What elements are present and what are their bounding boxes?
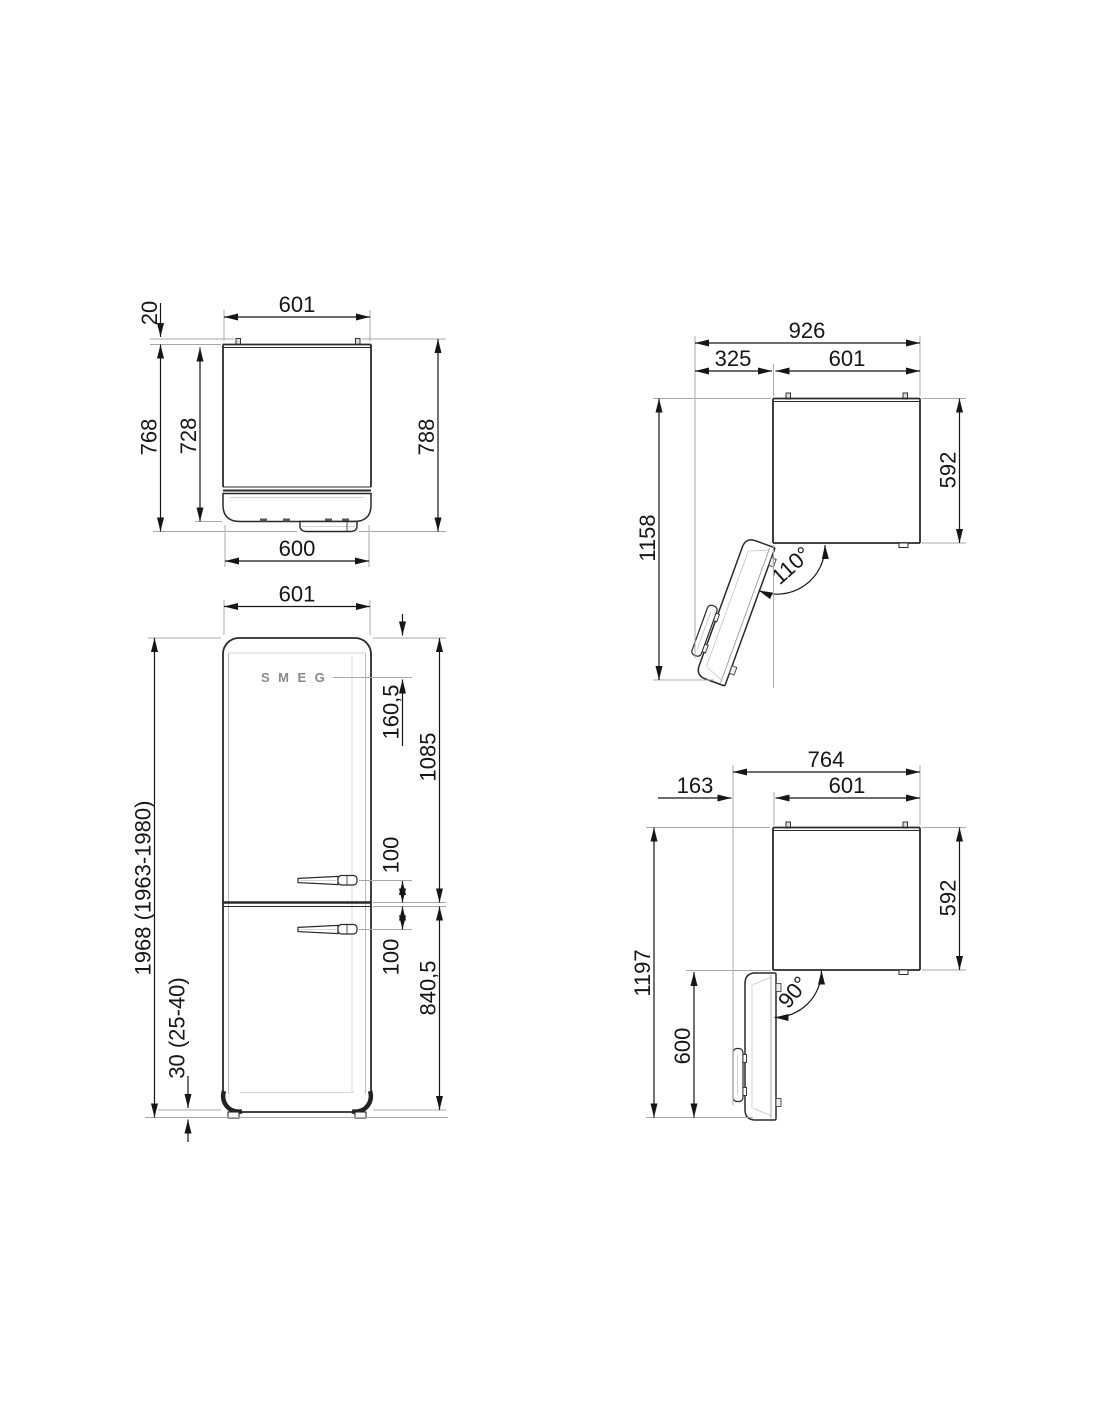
dim-open90-door-length: 600 — [670, 1028, 695, 1065]
dim-open110-overall-depth: 1158 — [635, 514, 660, 561]
top-view-door-open-110: 110° 926 325 601 1158 592 — [635, 318, 966, 688]
dim-front-logo-offset: 160,5 — [379, 684, 404, 739]
smeg-logo: SMEG — [261, 670, 333, 685]
fridge-dimension-drawing: 601 20 768 728 788 600 SMEG — [0, 0, 1100, 1422]
dim-top-depth-door: 768 — [137, 419, 162, 456]
dim-top-depth-total: 788 — [414, 419, 439, 456]
dim-top-wall-spacer: 20 — [137, 301, 162, 325]
top-view-cabinet — [223, 339, 371, 491]
dim-front-handle-below-split: 100 — [379, 939, 404, 976]
door-gasket-tick — [260, 519, 267, 522]
dim-top-depth-body: 728 — [176, 418, 201, 455]
dim-front-fridge-door-height: 1085 — [416, 733, 441, 782]
open110-dimensions: 926 325 601 1158 592 — [635, 318, 961, 680]
front-view: SMEG 601 — [131, 582, 449, 1143]
open110-door — [684, 533, 779, 688]
dim-open90-width: 601 — [829, 773, 866, 798]
top-view-door-closed: 601 20 768 728 788 600 — [137, 292, 447, 567]
dim-open90-angle: 90° — [773, 971, 814, 1013]
top-view-handle — [300, 522, 357, 532]
open90-cabinet — [773, 822, 920, 975]
technical-drawing-page: 601 20 768 728 788 600 SMEG — [0, 0, 1100, 1422]
dim-open90-door-swing: 163 — [677, 773, 714, 798]
door-gasket-tick — [283, 519, 290, 522]
dim-open110-overall-width: 926 — [789, 318, 826, 343]
dim-top-cabinet-width: 601 — [279, 292, 316, 317]
open110-cabinet — [773, 393, 920, 548]
open90-dimensions: 764 163 601 1197 600 592 — [630, 747, 961, 1118]
dim-open110-width: 601 — [829, 346, 866, 371]
dim-open90-overall-width: 764 — [808, 747, 845, 772]
dim-top-door-width: 600 — [279, 536, 316, 561]
dim-open90-overall-depth: 1197 — [630, 949, 655, 996]
dim-open110-depth: 592 — [936, 452, 961, 489]
top-view-door — [223, 494, 371, 532]
top-view-door-open-90: 90° 764 163 601 1197 600 592 — [630, 747, 966, 1120]
dim-front-handle-above-split: 100 — [379, 837, 404, 874]
dim-open90-depth: 592 — [936, 880, 961, 917]
dim-front-width: 601 — [279, 582, 316, 607]
dim-front-plinth-height: 30 (25-40) — [165, 977, 190, 1079]
dim-front-total-height: 1968 (1963-1980) — [131, 801, 156, 976]
dim-open110-door-swing: 325 — [715, 346, 752, 371]
dim-front-freezer-door-height: 840,5 — [416, 960, 441, 1015]
